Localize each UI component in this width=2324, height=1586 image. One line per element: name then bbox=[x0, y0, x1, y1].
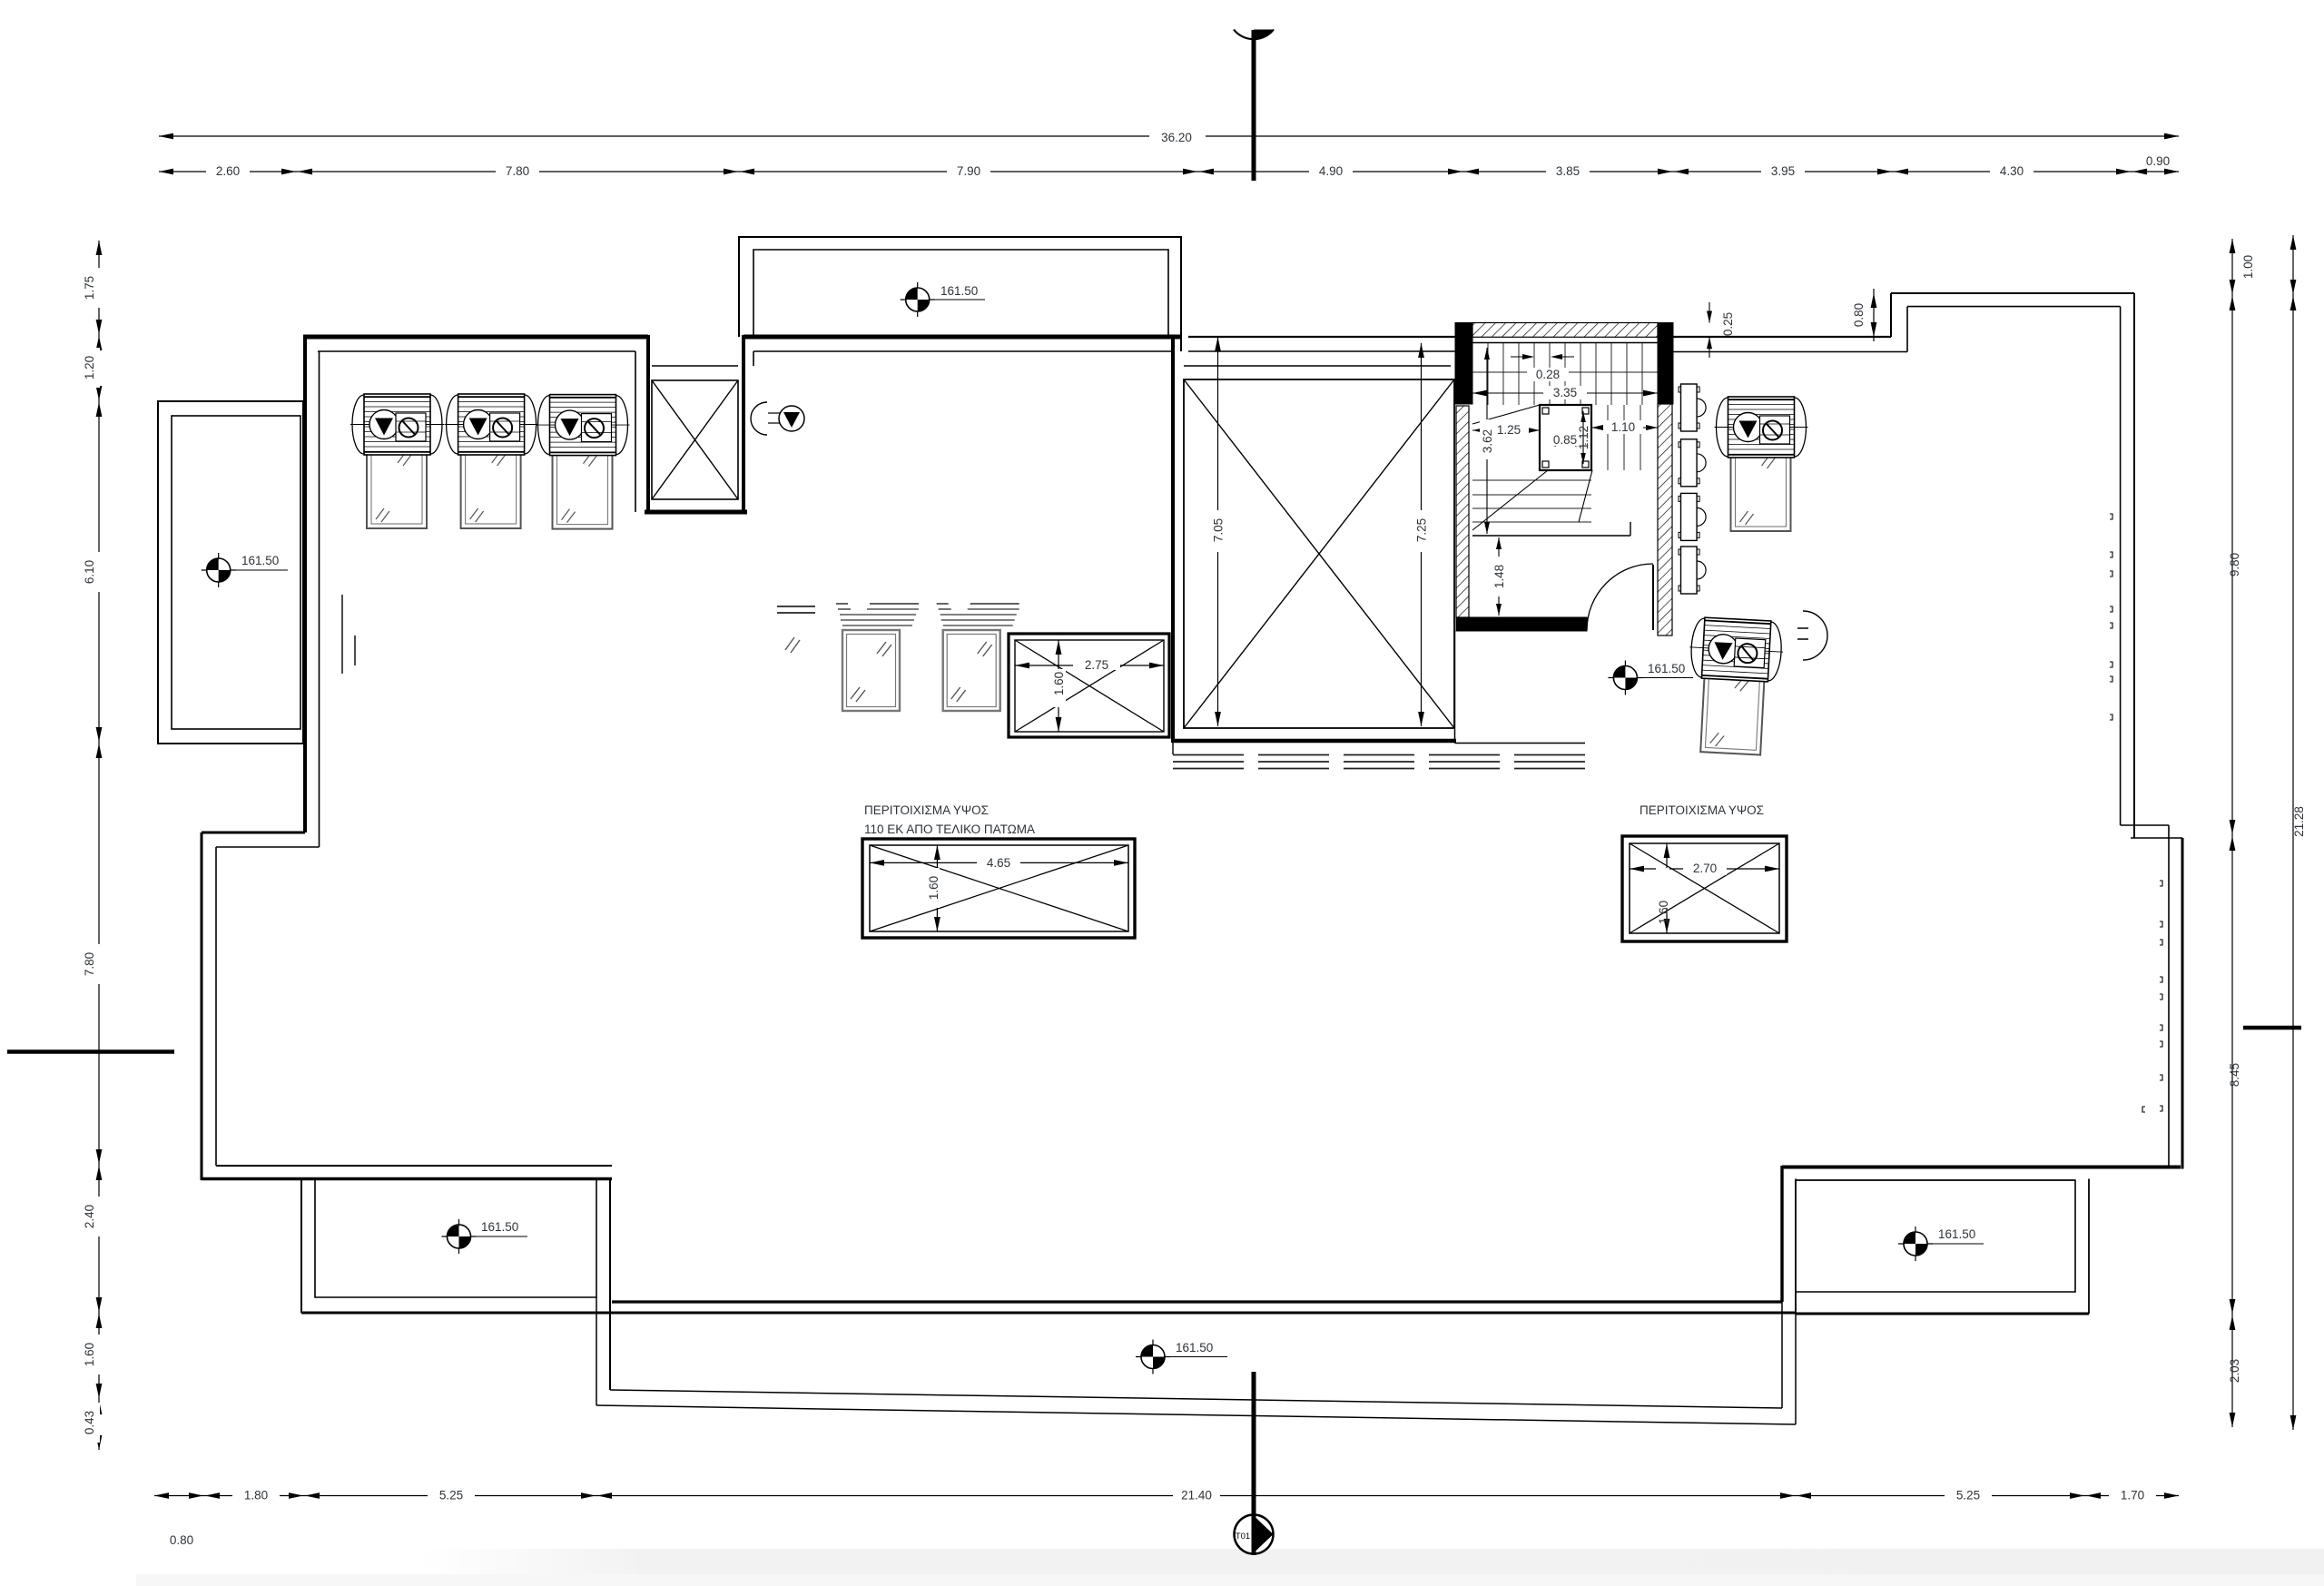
svg-text:36.20: 36.20 bbox=[1161, 131, 1192, 144]
svg-text:9.80: 9.80 bbox=[2228, 553, 2241, 576]
svg-text:7.80: 7.80 bbox=[83, 952, 96, 976]
svg-text:1.25: 1.25 bbox=[1497, 423, 1521, 437]
svg-text:4.30: 4.30 bbox=[2000, 164, 2024, 178]
svg-text:ΠΕΡΙΤΟΙΧΙΣΜΑ ΥΨΟΣ: ΠΕΡΙΤΟΙΧΙΣΜΑ ΥΨΟΣ bbox=[1640, 803, 1764, 817]
svg-text:5.25: 5.25 bbox=[1956, 1489, 1980, 1502]
svg-text:0.90: 0.90 bbox=[2146, 154, 2170, 168]
svg-text:1.20: 1.20 bbox=[83, 356, 96, 379]
svg-text:ΠΕΡΙΤΟΙΧΙΣΜΑ ΥΨΟΣ: ΠΕΡΙΤΟΙΧΙΣΜΑ ΥΨΟΣ bbox=[864, 803, 989, 817]
svg-text:T01: T01 bbox=[1236, 1532, 1250, 1542]
svg-text:2.03: 2.03 bbox=[2228, 1359, 2241, 1383]
svg-text:1.70: 1.70 bbox=[2121, 1489, 2144, 1502]
svg-text:3.95: 3.95 bbox=[1771, 164, 1795, 178]
svg-text:1.10: 1.10 bbox=[1611, 420, 1635, 434]
svg-text:161.50: 161.50 bbox=[241, 554, 279, 567]
svg-text:1.75: 1.75 bbox=[83, 276, 96, 300]
svg-text:161.50: 161.50 bbox=[1176, 1341, 1213, 1355]
svg-text:2.60: 2.60 bbox=[216, 164, 240, 178]
svg-text:161.50: 161.50 bbox=[1648, 662, 1685, 675]
svg-text:3.35: 3.35 bbox=[1553, 386, 1577, 399]
svg-text:4.65: 4.65 bbox=[987, 856, 1010, 870]
svg-text:6.10: 6.10 bbox=[83, 560, 96, 584]
svg-text:1.80: 1.80 bbox=[244, 1489, 268, 1502]
svg-text:21.28: 21.28 bbox=[2292, 806, 2306, 837]
svg-text:0.80: 0.80 bbox=[1852, 303, 1866, 327]
svg-text:7.25: 7.25 bbox=[1415, 518, 1429, 542]
svg-text:2.75: 2.75 bbox=[1085, 658, 1108, 672]
svg-text:161.50: 161.50 bbox=[1938, 1227, 1975, 1241]
svg-text:0.28: 0.28 bbox=[1536, 368, 1560, 381]
svg-text:8.45: 8.45 bbox=[2228, 1063, 2241, 1087]
svg-text:21.40: 21.40 bbox=[1181, 1489, 1212, 1502]
svg-text:161.50: 161.50 bbox=[940, 284, 978, 298]
svg-text:7.90: 7.90 bbox=[957, 164, 980, 178]
svg-text:7.05: 7.05 bbox=[1212, 518, 1226, 542]
svg-text:5.25: 5.25 bbox=[439, 1489, 463, 1502]
svg-text:1.48: 1.48 bbox=[1492, 565, 1506, 588]
svg-text:1.00: 1.00 bbox=[2241, 255, 2255, 279]
svg-text:1.60: 1.60 bbox=[1052, 672, 1066, 695]
svg-text:0.43: 0.43 bbox=[83, 1411, 96, 1434]
svg-text:2.70: 2.70 bbox=[1693, 862, 1717, 875]
svg-text:1.60: 1.60 bbox=[1657, 901, 1670, 924]
svg-text:4.90: 4.90 bbox=[1319, 164, 1343, 178]
svg-text:110 ΕΚ ΑΠΟ ΤΕΛΙΚΟ ΠΑΤΩΜΑ: 110 ΕΚ ΑΠΟ ΤΕΛΙΚΟ ΠΑΤΩΜΑ bbox=[864, 823, 1035, 836]
svg-text:1.12: 1.12 bbox=[1577, 426, 1590, 449]
svg-text:161.50: 161.50 bbox=[481, 1220, 518, 1234]
svg-text:0.85: 0.85 bbox=[1553, 433, 1577, 447]
svg-text:2.40: 2.40 bbox=[83, 1205, 96, 1228]
svg-text:1.60: 1.60 bbox=[83, 1343, 96, 1366]
svg-text:0.25: 0.25 bbox=[1721, 312, 1735, 336]
svg-text:3.62: 3.62 bbox=[1481, 429, 1494, 453]
svg-text:7.80: 7.80 bbox=[506, 164, 529, 178]
svg-text:3.85: 3.85 bbox=[1556, 164, 1580, 178]
svg-text:1.60: 1.60 bbox=[927, 876, 940, 900]
svg-text:0.80: 0.80 bbox=[170, 1533, 193, 1547]
